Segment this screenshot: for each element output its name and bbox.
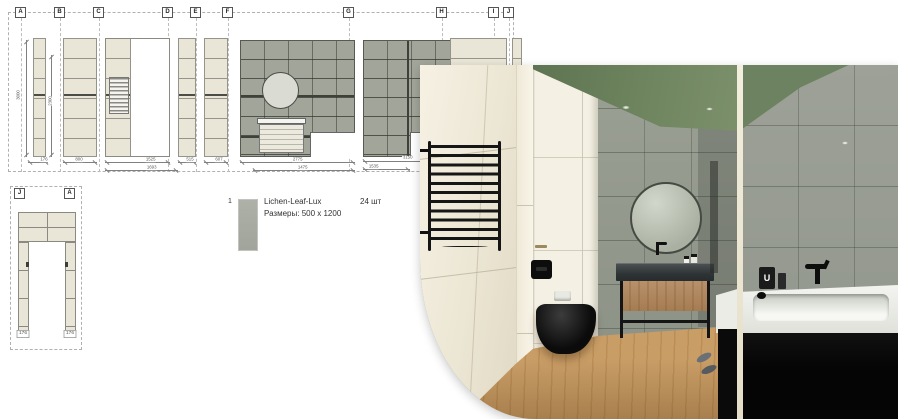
door-right-column [65,242,76,331]
bathtub-basin [753,294,889,321]
section-label-c: C [93,7,104,18]
door-right-width-label: 176 [64,330,77,338]
bathtub-panel-left-view [718,329,738,419]
basin-faucet-stem [656,242,659,255]
pillar-seam1 [517,205,533,206]
vanity-body-drawing [259,124,304,153]
dim-b-width-label: 800 [75,158,84,162]
section-line-b [60,18,61,172]
glass-screen-edge [710,161,718,273]
dim-a-width-label: 176 [40,158,49,162]
dim-a-inner-label: 2300 [49,96,53,106]
vanity-shelf [620,320,710,323]
dim-a-inner [51,55,52,157]
section-label-e: E [190,7,201,18]
ceiling-spotlight-1 [621,105,631,110]
tub-bottle-small [778,273,786,289]
radiator-bars [430,145,500,247]
ceiling-spotlight-right [841,141,849,145]
door-label-a: A [64,188,75,199]
flush-plate-buttons [536,267,547,271]
section-line-c [99,18,100,172]
toilet-paper-holder [554,291,571,301]
dim-a-total-label: 3000 [17,90,21,100]
elevation-f [240,40,355,157]
vanity-frame-legs [620,281,710,338]
door-left-column [18,242,29,331]
section-label-h: H [436,7,447,18]
section-label-d: D [162,7,173,18]
tub-faucet-body [815,268,820,284]
elevation-c [105,38,170,157]
dim-f-inner-label: 1475 [297,166,308,170]
cream-wall-seam2 [420,267,520,281]
pillar-seam2 [517,333,533,334]
section-label-j: J [503,7,514,18]
door-label-j: J [14,188,25,199]
section-line-a [21,18,22,172]
brass-hook [535,245,547,248]
section-label-g: G [343,7,354,18]
vanity-counter [616,263,714,281]
green-ceiling-right [743,65,853,131]
door-right-tick [65,262,68,267]
dim-f-width-label: 2775 [292,158,303,162]
legend-tile-size: Размеры: 500 x 1200 [264,209,341,219]
ceiling-spotlight-2 [705,107,714,111]
bathroom-render: U [420,65,898,419]
dim-a-total [26,40,27,157]
legend-row-index: 1 [228,198,232,206]
towel-radiator [428,139,502,253]
elevation-d [178,38,196,157]
elevation-a [33,38,46,157]
legend-tile-name: Lichen-Leaf-Lux [264,197,321,207]
tub-bottle: U [759,267,775,289]
dim-c-total-label: 1693 [146,166,157,170]
tub-faucet-handle [822,260,829,270]
dim-c-width-label: 1525 [145,158,156,162]
section-line-f [228,18,229,172]
legend-tile-swatch [238,199,258,251]
dim-c-total [105,170,178,171]
door-left-width-label: 176 [17,330,30,338]
design-sheet: A B C D E F G H I J 3000 2300 176 800 15… [0,0,898,419]
door-left-tick [26,262,29,267]
tub-bottle-label: U [764,273,771,283]
render-right-panel: U [743,65,898,419]
dim-g-width-label: 3150 [402,156,413,160]
elevation-g-thick-vline [407,41,409,158]
towel-radiator-drawing [109,77,129,114]
section-label-i: I [488,7,499,18]
door-top-band [18,212,76,242]
dim-g-inner-label: 1535 [368,165,379,169]
elevation-e [204,38,228,157]
elevation-f-tub-zone [310,132,355,157]
elevation-b [63,38,97,157]
bathtub-drain [757,292,766,299]
dim-e-width-label: 607 [215,158,224,162]
bathtub-rim [743,285,898,333]
section-line-e [196,18,197,172]
section-label-b: B [54,7,65,18]
mirror-drawing [262,72,299,109]
door-top-band-seam [47,213,48,241]
section-label-a: A [15,7,26,18]
flush-plate [531,260,552,279]
dim-d-width-label: 515 [186,158,195,162]
section-label-f: F [222,7,233,18]
dim-c-width [105,162,170,163]
bathtub-front-panel [743,333,898,419]
legend-tile-count: 24 шт [360,197,381,207]
